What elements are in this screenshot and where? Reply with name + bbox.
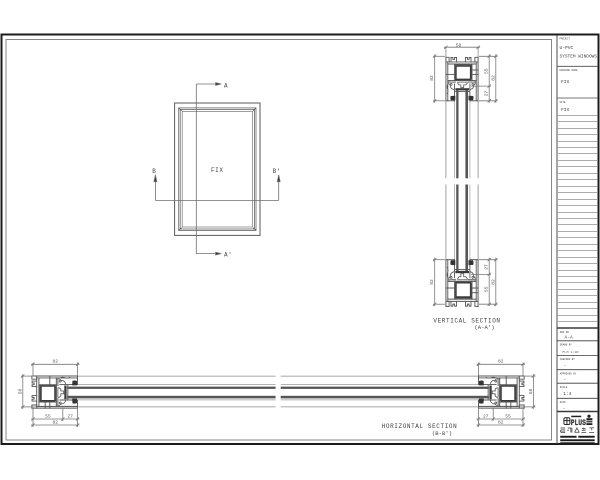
svg-text:SITE: SITE <box>560 101 567 104</box>
svg-text:A': A' <box>224 252 232 259</box>
svg-text:PROJECT: PROJECT <box>560 37 571 40</box>
svg-text:27: 27 <box>484 264 490 270</box>
svg-text:55: 55 <box>505 414 511 420</box>
svg-text:55: 55 <box>45 414 51 420</box>
svg-text:55: 55 <box>484 286 490 292</box>
svg-text:55: 55 <box>484 68 490 74</box>
svg-text:FIX: FIX <box>561 79 570 85</box>
svg-text:APPROVED BY: APPROVED BY <box>560 372 577 375</box>
svg-text:FIX: FIX <box>211 167 224 174</box>
svg-text:82: 82 <box>429 279 435 285</box>
svg-text:82: 82 <box>52 420 58 426</box>
svg-text:82: 82 <box>498 420 504 426</box>
svg-text:SCALE: SCALE <box>560 386 568 389</box>
svg-text:82: 82 <box>490 75 496 81</box>
svg-text:82: 82 <box>498 359 504 365</box>
svg-text:U-PVC: U-PVC <box>560 45 574 51</box>
svg-text:DRAWING NAME: DRAWING NAME <box>560 69 579 72</box>
svg-text:-: - <box>564 378 567 383</box>
svg-text:SYSTEM WINDOWS: SYSTEM WINDOWS <box>560 54 598 60</box>
svg-text:27: 27 <box>483 414 489 420</box>
svg-text:A: A <box>224 82 228 89</box>
svg-text:PLUS: PLUS <box>571 418 586 428</box>
svg-text:M.H 1:30: M.H 1:30 <box>563 351 579 355</box>
svg-text:82: 82 <box>490 279 496 285</box>
svg-text:82: 82 <box>52 359 58 365</box>
svg-text:-: - <box>564 364 567 369</box>
svg-text:58: 58 <box>528 389 534 395</box>
svg-text:58: 58 <box>17 389 23 395</box>
svg-text:(B-B'): (B-B') <box>432 430 452 437</box>
svg-text:27: 27 <box>67 414 73 420</box>
svg-text:(A-A'): (A-A') <box>474 324 494 331</box>
svg-text:27: 27 <box>484 91 490 97</box>
svg-text:B': B' <box>273 168 281 175</box>
svg-text:-: - <box>563 406 566 411</box>
svg-text:FIX: FIX <box>561 107 570 113</box>
svg-text:DRAWN BY: DRAWN BY <box>560 344 573 347</box>
svg-text:CHECKED BY: CHECKED BY <box>560 358 576 361</box>
svg-text:58: 58 <box>456 43 462 49</box>
svg-text:1:4: 1:4 <box>563 391 572 397</box>
svg-text:DATE: DATE <box>560 401 567 404</box>
svg-text:B: B <box>152 168 156 175</box>
svg-text:DWG NO: DWG NO <box>560 331 570 334</box>
svg-text:82: 82 <box>429 75 435 81</box>
svg-text:A-A: A-A <box>565 335 574 341</box>
